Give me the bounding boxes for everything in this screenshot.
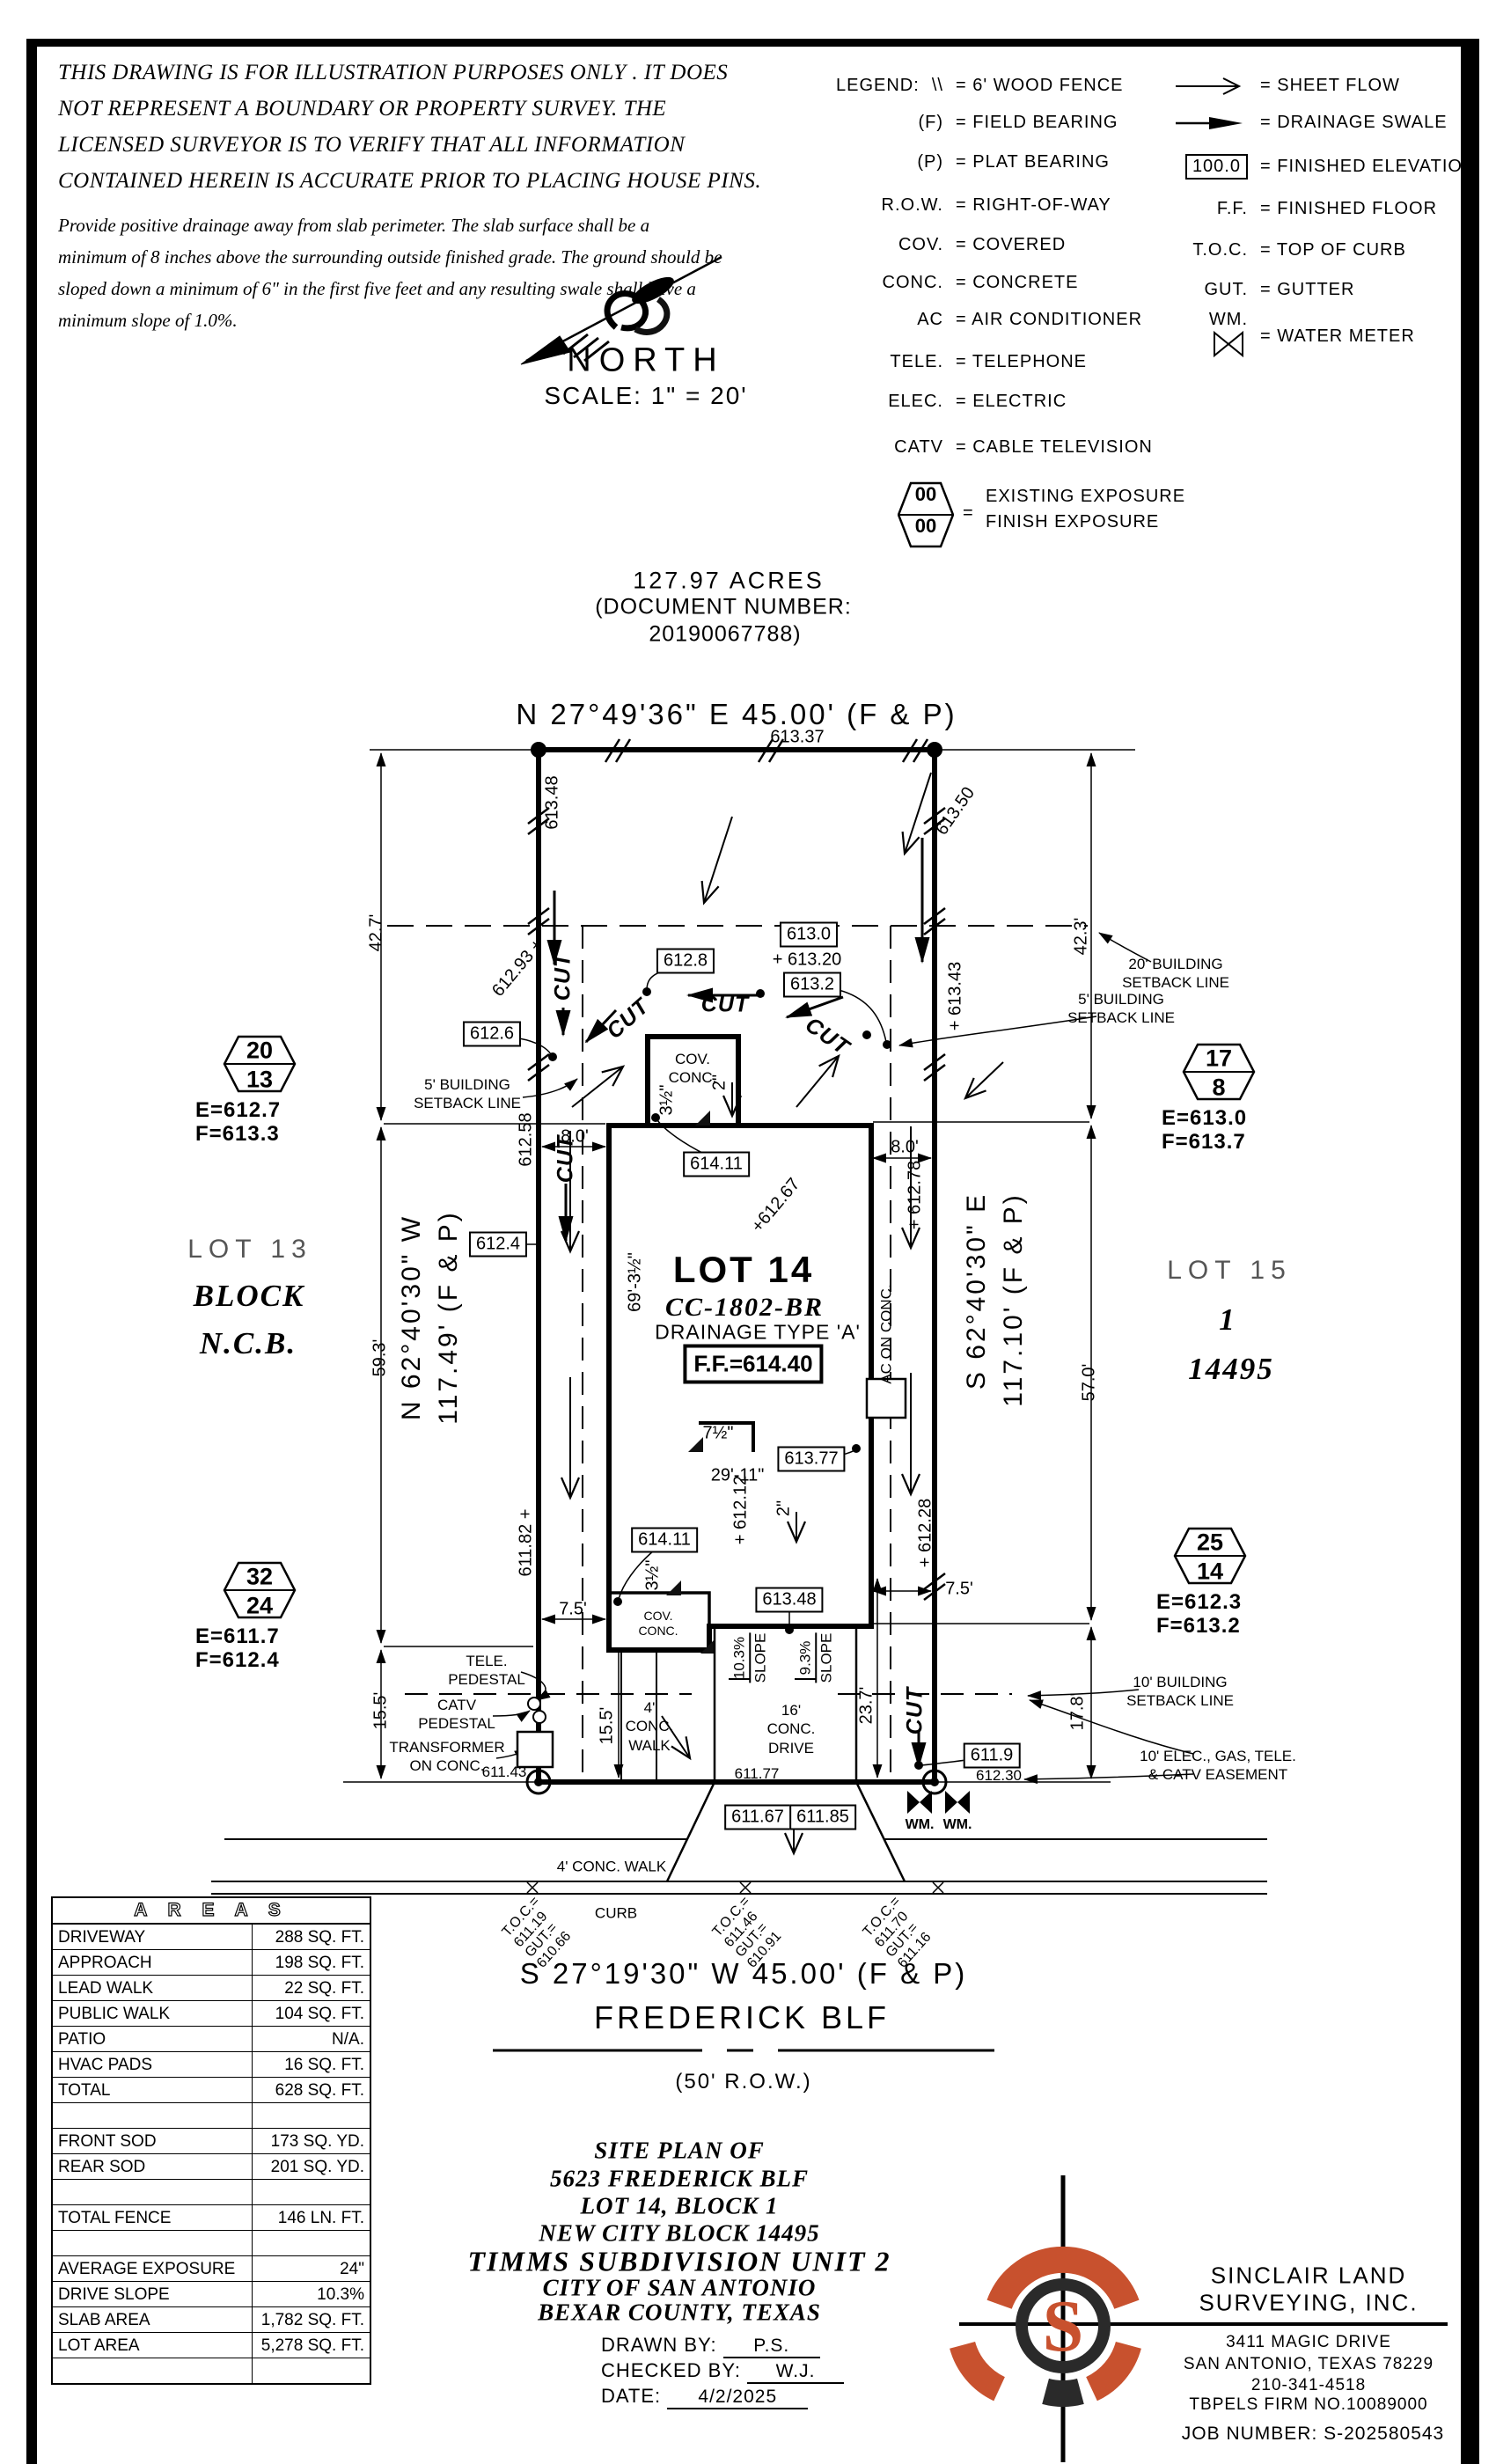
plan-label: TELE.PEDESTAL	[448, 1652, 525, 1690]
legend-definition: = AIR CONDITIONER	[956, 310, 1142, 330]
titleblock-line: 5623 FREDERICK BLF	[550, 2166, 809, 2193]
annotation-label: 17.8'	[1068, 1693, 1089, 1731]
legend-symbol: CONC.	[871, 273, 943, 293]
plan-label: TRANSFORMERON CONC.	[389, 1738, 504, 1776]
legend-definition: = PLAT BEARING	[956, 152, 1110, 172]
annotation-label: + 613.20	[773, 950, 841, 971]
legend-symbol: COV.	[871, 235, 943, 255]
areas-table-row: APPROACH198 SQ. FT.	[53, 1950, 370, 1976]
legend-symbol: AC	[871, 310, 943, 330]
north-label: NORTH	[567, 342, 724, 380]
acreage-label: 127.97 ACRES	[633, 568, 825, 595]
elevation-box: 611.9	[964, 1743, 1021, 1769]
plan-label: 5' BUILDINGSETBACK LINE	[414, 1075, 521, 1113]
legend-symbol: T.O.C.	[1163, 240, 1248, 260]
areas-row-label: AVERAGE EXPOSURE	[53, 2256, 253, 2281]
areas-row-label: LEAD WALK	[53, 1976, 253, 2000]
annotation-label: WM.	[943, 1817, 972, 1833]
legend-symbol: ELEC.	[871, 392, 943, 412]
water-meter-icon: WM.	[1209, 310, 1248, 363]
exposure-finish: 8	[1212, 1074, 1225, 1102]
plan-model-label: CC-1802-BR	[665, 1293, 824, 1323]
annotation-label: + 612.12	[731, 1476, 752, 1544]
ncb-label: N.C.B.	[200, 1326, 297, 1361]
drainage-note: Provide positive drainage away from slab…	[58, 209, 722, 336]
north-bearing-label: N 27°49'36" E 45.00' (F & P)	[516, 698, 957, 731]
legend-exposure-def: EXISTING EXPOSURE FINISH EXPOSURE	[986, 484, 1185, 535]
legend-item: ELEC.= ELECTRIC	[871, 392, 1067, 412]
areas-table-row: PUBLIC WALK104 SQ. FT.	[53, 2001, 370, 2027]
areas-row-value: 173 SQ. YD.	[253, 2129, 370, 2153]
plan-label: CATVPEDESTAL	[418, 1696, 495, 1734]
areas-table-row	[53, 2358, 370, 2383]
exposure-existing: 32	[246, 1564, 273, 1591]
elevation-box: 612.4	[469, 1232, 527, 1258]
legend-item: F.F.= FINISHED FLOOR	[1163, 199, 1437, 219]
annotation-label: 7½"	[703, 1424, 734, 1444]
plan-label: 9.3%SLOPE	[796, 1633, 836, 1683]
areas-row-value: 22 SQ. FT.	[253, 1976, 370, 2000]
exposure-existing: 25	[1197, 1529, 1223, 1557]
annotation-label: 611.82 +	[517, 1509, 537, 1577]
date-row: DATE: 4/2/2025	[601, 2385, 808, 2409]
note-line: minimum of 8 inches above the surroundin…	[58, 241, 722, 273]
surveyor-address1: 3411 MAGIC DRIVE	[1226, 2333, 1391, 2352]
legend-definition: = FIELD BEARING	[956, 113, 1118, 133]
areas-row-value	[253, 2103, 370, 2128]
new-city-block-number: 14495	[1188, 1352, 1274, 1387]
plan-label: 10' ELEC., GAS, TELE.& CATV EASEMENT	[1140, 1747, 1296, 1785]
annotation-label: 15.5'	[598, 1707, 618, 1745]
areas-row-value: 201 SQ. YD.	[253, 2154, 370, 2179]
areas-row-label: REAR SOD	[53, 2154, 253, 2179]
areas-table-row: TOTAL628 SQ. FT.	[53, 2078, 370, 2103]
document-number-line1: (DOCUMENT NUMBER:	[595, 595, 852, 620]
disclaimer-line: CONTAINED HEREIN IS ACCURATE PRIOR TO PL…	[58, 163, 761, 199]
legend-definition: = FINISHED FLOOR	[1260, 199, 1437, 219]
elevation-box: 611.67	[724, 1805, 791, 1830]
plan-label: CURB	[595, 1903, 637, 1922]
lot15-label: LOT 15	[1167, 1256, 1292, 1286]
plan-label: 4'CONC.WALK	[626, 1698, 674, 1755]
logo-letter: S	[1043, 2285, 1084, 2367]
areas-table: A R E A S DRIVEWAY288 SQ. FT.APPROACH198…	[51, 1896, 371, 2385]
areas-row-label: HVAC PADS	[53, 2052, 253, 2077]
ac-pad	[867, 1379, 906, 1418]
job-number: JOB NUMBER: S-202580543	[1182, 2424, 1444, 2445]
legend-item: COV.= COVERED	[871, 235, 1066, 255]
areas-row-value	[253, 2231, 370, 2255]
legend-symbol: GUT.	[1163, 280, 1248, 300]
exposure-finish: 14	[1197, 1558, 1223, 1586]
finished-floor-label: F.F.=614.40	[683, 1345, 823, 1384]
areas-row-value: 628 SQ. FT.	[253, 2078, 370, 2102]
disclaimer-text: THIS DRAWING IS FOR ILLUSTRATION PURPOSE…	[58, 55, 761, 199]
areas-table-row: PATION/A.	[53, 2027, 370, 2052]
annotation-label: + 612.28	[916, 1499, 936, 1567]
scale-label: SCALE: 1" = 20'	[544, 382, 747, 410]
surveyor-name-line1: SINCLAIR LAND	[1211, 2262, 1407, 2290]
note-line: minimum slope of 1.0%.	[58, 304, 722, 336]
elevation-box: 614.11	[683, 1152, 750, 1177]
exposure-existing: 17	[1206, 1045, 1232, 1073]
annotation-label: + 613.43	[946, 962, 966, 1030]
surveyor-phone: 210-341-4518	[1251, 2376, 1366, 2395]
annotation-label: WM.	[906, 1817, 935, 1833]
elevation-box: 613.0	[780, 922, 838, 948]
annotation-label: 7.5'	[559, 1600, 587, 1620]
legend-exposure-eq: =	[963, 503, 973, 524]
west-bearing-direction: N 62°40'30" W	[397, 1214, 427, 1420]
lot13-label: LOT 13	[187, 1235, 312, 1265]
date-value: 4/2/2025	[667, 2387, 808, 2409]
exposure-elevations: E=611.7F=612.4	[195, 1624, 280, 1672]
areas-row-label	[53, 2358, 253, 2383]
annotation-label: 7.5'	[945, 1580, 973, 1600]
elevation-box: 613.77	[777, 1447, 845, 1472]
lot14-label: LOT 14	[673, 1249, 814, 1291]
elevation-box: 612.6	[463, 1022, 521, 1047]
east-bearing-direction: S 62°40'30" E	[962, 1192, 992, 1390]
legend-item: (F)= FIELD BEARING	[871, 113, 1118, 133]
legend-definition: = FINISHED ELEVATION	[1260, 157, 1476, 177]
areas-row-value: 288 SQ. FT.	[253, 1925, 370, 1949]
site-plan-sheet: S THIS DRAWING IS FOR ILLUSTRATION PURPO…	[0, 0, 1496, 2464]
areas-row-value: 104 SQ. FT.	[253, 2001, 370, 2026]
legend-exposure-top: 00	[915, 483, 936, 506]
annotation-label: CUT	[701, 993, 749, 1018]
date-label: DATE:	[601, 2385, 661, 2407]
street-name: FREDERICK BLF	[594, 1999, 890, 2036]
surveyor-name-line2: SURVEYING, INC.	[1199, 2290, 1418, 2317]
legend-definition: = CABLE TELEVISION	[956, 437, 1153, 458]
areas-row-label: PUBLIC WALK	[53, 2001, 253, 2026]
legend-symbol: \\	[871, 76, 943, 96]
plan-label: 10' BUILDINGSETBACK LINE	[1126, 1673, 1234, 1711]
checked-by-label: CHECKED BY:	[601, 2359, 741, 2381]
legend-definition: = DRAINAGE SWALE	[1260, 113, 1448, 133]
right-of-way-label: (50' R.O.W.)	[675, 2070, 811, 2094]
legend-definition: = TOP OF CURB	[1260, 240, 1406, 260]
disclaimer-line: THIS DRAWING IS FOR ILLUSTRATION PURPOSE…	[58, 55, 761, 91]
areas-row-value: N/A.	[253, 2027, 370, 2051]
legend-definition: = TELEPHONE	[956, 352, 1087, 372]
annotation-label: 2"	[774, 1500, 795, 1516]
transformer-pad	[517, 1732, 553, 1767]
legend-symbol: R.O.W.	[871, 195, 943, 216]
block-label: BLOCK	[194, 1279, 305, 1314]
plan-label: 20' BUILDINGSETBACK LINE	[1122, 955, 1229, 993]
areas-row-value: 5,278 SQ. FT.	[253, 2333, 370, 2358]
annotation-label: 3½"	[643, 1560, 664, 1591]
disclaimer-line: LICENSED SURVEYOR IS TO VERIFY THAT ALL …	[58, 127, 761, 163]
checked-by-row: CHECKED BY: W.J.	[601, 2359, 844, 2384]
legend-item: T.O.C.= TOP OF CURB	[1163, 240, 1406, 260]
annotation-label: 59.3'	[370, 1339, 391, 1377]
legend-definition: = RIGHT-OF-WAY	[956, 195, 1111, 216]
areas-table-row: SLAB AREA1,782 SQ. FT.	[53, 2307, 370, 2333]
areas-table-row: LOT AREA5,278 SQ. FT.	[53, 2333, 370, 2358]
areas-row-label	[53, 2103, 253, 2128]
disclaimer-line: NOT REPRESENT A BOUNDARY OR PROPERTY SUR…	[58, 91, 761, 127]
exposure-elevations: E=612.7F=613.3	[195, 1098, 281, 1146]
legend-item: CONC.= CONCRETE	[871, 273, 1078, 293]
plan-label: AC ON CONC.	[876, 1284, 895, 1383]
water-meter-icon	[907, 1791, 970, 1814]
areas-table-row	[53, 2231, 370, 2256]
areas-table-row	[53, 2180, 370, 2205]
legend-symbol: (F)	[871, 113, 943, 133]
titleblock-line: SITE PLAN OF	[594, 2138, 765, 2165]
annotation-label: 612.58	[517, 1112, 537, 1166]
areas-row-label: PATIO	[53, 2027, 253, 2051]
annotation-label: CUT	[551, 953, 576, 1001]
legend-exposure-bottom: 00	[915, 515, 936, 538]
legend-item: AC= AIR CONDITIONER	[871, 310, 1142, 330]
elevation-box: 613.48	[755, 1588, 823, 1613]
legend-symbol: (P)	[871, 152, 943, 172]
plan-label: 10.3%SLOPE	[730, 1633, 770, 1683]
titleblock-lines	[959, 2175, 1448, 2462]
titleblock-subdivision: TIMMS SUBDIVISION UNIT 2	[468, 2246, 891, 2278]
legend-item: = DRAINAGE SWALE	[1163, 113, 1448, 133]
annotation-label: 57.0'	[1080, 1364, 1100, 1402]
areas-table-row: TOTAL FENCE146 LN. FT.	[53, 2205, 370, 2231]
exposure-existing: 20	[246, 1038, 273, 1065]
areas-row-value: 198 SQ. FT.	[253, 1950, 370, 1975]
legend-symbol: TELE.	[871, 352, 943, 372]
areas-table-row: HVAC PADS16 SQ. FT.	[53, 2052, 370, 2078]
areas-row-label	[53, 2231, 253, 2255]
plan-label: 4' CONC. WALK	[557, 1857, 666, 1875]
surveyor-logo: S	[963, 2260, 1129, 2394]
areas-row-label: DRIVE SLOPE	[53, 2282, 253, 2306]
areas-table-row: DRIVEWAY288 SQ. FT.	[53, 1925, 370, 1950]
legend-definition: = COVERED	[956, 235, 1066, 255]
areas-row-label: TOTAL FENCE	[53, 2205, 253, 2230]
finished-elevation-box: 100.0	[1185, 154, 1248, 180]
sheet-flow-arrow-icon	[1174, 77, 1248, 96]
areas-table-row: DRIVE SLOPE10.3%	[53, 2282, 370, 2307]
legend-definition: = CONCRETE	[956, 273, 1078, 293]
elevation-box: 612.8	[656, 949, 715, 974]
document-number-line2: 20190067788)	[649, 622, 801, 648]
drawn-by-value: P.S.	[723, 2336, 820, 2358]
areas-table-row: AVERAGE EXPOSURE24"	[53, 2256, 370, 2282]
areas-table-row: FRONT SOD173 SQ. YD.	[53, 2129, 370, 2154]
annotation-label: 42.7'	[367, 914, 387, 952]
areas-row-value: 24"	[253, 2256, 370, 2281]
drawn-by-row: DRAWN BY: P.S.	[601, 2334, 820, 2358]
legend-item: R.O.W.= RIGHT-OF-WAY	[871, 195, 1111, 216]
legend-item: WM.= WATER METER	[1163, 310, 1415, 363]
legend-exposure-line1: EXISTING EXPOSURE	[986, 484, 1185, 510]
areas-row-label: APPROACH	[53, 1950, 253, 1975]
annotation-label: 613.48	[543, 775, 563, 829]
plan-label: 5' BUILDINGSETBACK LINE	[1067, 990, 1175, 1028]
annotation-label: 611.77	[735, 1765, 780, 1783]
titleblock-line: LOT 14, BLOCK 1	[580, 2193, 778, 2220]
checked-by-value: W.J.	[747, 2361, 844, 2384]
exposure-finish: 13	[246, 1067, 273, 1094]
west-bearing-length: 117.49' (F & P)	[434, 1210, 464, 1425]
catv-pedestal-symbol	[533, 1711, 546, 1723]
legend-item: (P)= PLAT BEARING	[871, 152, 1110, 172]
titleblock-line: CITY OF SAN ANTONIO	[543, 2275, 817, 2302]
annotation-label: 29'-11"	[711, 1466, 765, 1486]
annotation-label: 23.7'	[857, 1687, 877, 1725]
east-bearing-length: 117.10' (F & P)	[999, 1192, 1029, 1407]
drainage-swale-arrow-icon	[1174, 114, 1248, 133]
legend-exposure-line2: FINISH EXPOSURE	[986, 510, 1185, 535]
areas-row-value: 146 LN. FT.	[253, 2205, 370, 2230]
plan-label: COV.CONC.	[638, 1609, 678, 1639]
legend-definition: = GUTTER	[1260, 280, 1354, 300]
elevation-box: 611.85	[789, 1805, 856, 1830]
areas-row-label: TOTAL	[53, 2078, 253, 2102]
legend-item: 100.0= FINISHED ELEVATION	[1163, 154, 1476, 180]
areas-row-value: 1,782 SQ. FT.	[253, 2307, 370, 2332]
legend-item: GUT.= GUTTER	[1163, 280, 1354, 300]
areas-row-label	[53, 2180, 253, 2204]
note-line: Provide positive drainage away from slab…	[58, 209, 722, 241]
annotation-label: 42.3'	[1072, 918, 1092, 956]
areas-row-value	[253, 2180, 370, 2204]
drainage-type-label: DRAINAGE TYPE 'A'	[655, 1321, 861, 1345]
areas-row-value: 10.3%	[253, 2282, 370, 2306]
annotation-label: 613.37	[770, 728, 824, 748]
legend-definition: = SHEET FLOW	[1260, 76, 1400, 96]
annotation-label: + 612.78	[906, 1161, 926, 1229]
titleblock-line: BEXAR COUNTY, TEXAS	[538, 2299, 821, 2327]
annotation-label: CUT	[554, 1135, 579, 1183]
areas-table-row: LEAD WALK22 SQ. FT.	[53, 1976, 370, 2001]
areas-row-value	[253, 2358, 370, 2383]
legend-definition: = WATER METER	[1260, 326, 1415, 347]
plan-label: 16'CONC.DRIVE	[767, 1701, 816, 1757]
legend-symbol: F.F.	[1163, 199, 1248, 219]
areas-row-value: 16 SQ. FT.	[253, 2052, 370, 2077]
legend-definition: = ELECTRIC	[956, 392, 1067, 412]
surveyor-firm-number: TBPELS FIRM NO.10089000	[1189, 2395, 1427, 2415]
plan-label: COV.CONC.	[669, 1050, 717, 1088]
annotation-label: 69'-3½"	[626, 1252, 646, 1312]
annotation-label: 612.30	[976, 1767, 1022, 1785]
block-number-1: 1	[1219, 1302, 1236, 1338]
legend-item: CATV= CABLE TELEVISION	[871, 437, 1153, 458]
areas-table-row: REAR SOD201 SQ. YD.	[53, 2154, 370, 2180]
legend-item: = SHEET FLOW	[1163, 76, 1400, 96]
exposure-elevations: E=612.3F=613.2	[1156, 1590, 1242, 1638]
exposure-elevations: E=613.0F=613.7	[1162, 1106, 1247, 1154]
surveyor-address2: SAN ANTONIO, TEXAS 78229	[1184, 2355, 1434, 2374]
note-line: sloped down a minimum of 6" in the first…	[58, 273, 722, 304]
tele-pedestal-symbol	[528, 1698, 540, 1710]
areas-row-label: SLAB AREA	[53, 2307, 253, 2332]
drawn-by-label: DRAWN BY:	[601, 2334, 717, 2356]
titleblock-line: NEW CITY BLOCK 14495	[539, 2220, 819, 2248]
areas-row-label: DRIVEWAY	[53, 1925, 253, 1949]
legend-item: \\= 6' WOOD FENCE	[871, 76, 1124, 96]
elevation-box: 614.11	[631, 1528, 698, 1553]
areas-row-label: FRONT SOD	[53, 2129, 253, 2153]
areas-table-title: A R E A S	[53, 1898, 370, 1925]
elevation-box: 613.2	[783, 972, 841, 998]
legend-item: TELE.= TELEPHONE	[871, 352, 1087, 372]
annotation-label: 3½"	[657, 1085, 678, 1116]
legend-symbol: CATV	[871, 437, 943, 458]
areas-table-body: DRIVEWAY288 SQ. FT.APPROACH198 SQ. FT.LE…	[53, 1925, 370, 2383]
areas-table-row	[53, 2103, 370, 2129]
areas-row-label: LOT AREA	[53, 2333, 253, 2358]
legend-definition: = 6' WOOD FENCE	[956, 76, 1124, 96]
annotation-label: CUT	[903, 1687, 928, 1734]
exposure-finish: 24	[246, 1593, 273, 1620]
annotation-label: 15.5'	[371, 1692, 392, 1730]
annotation-label: 8.0'	[891, 1138, 919, 1158]
